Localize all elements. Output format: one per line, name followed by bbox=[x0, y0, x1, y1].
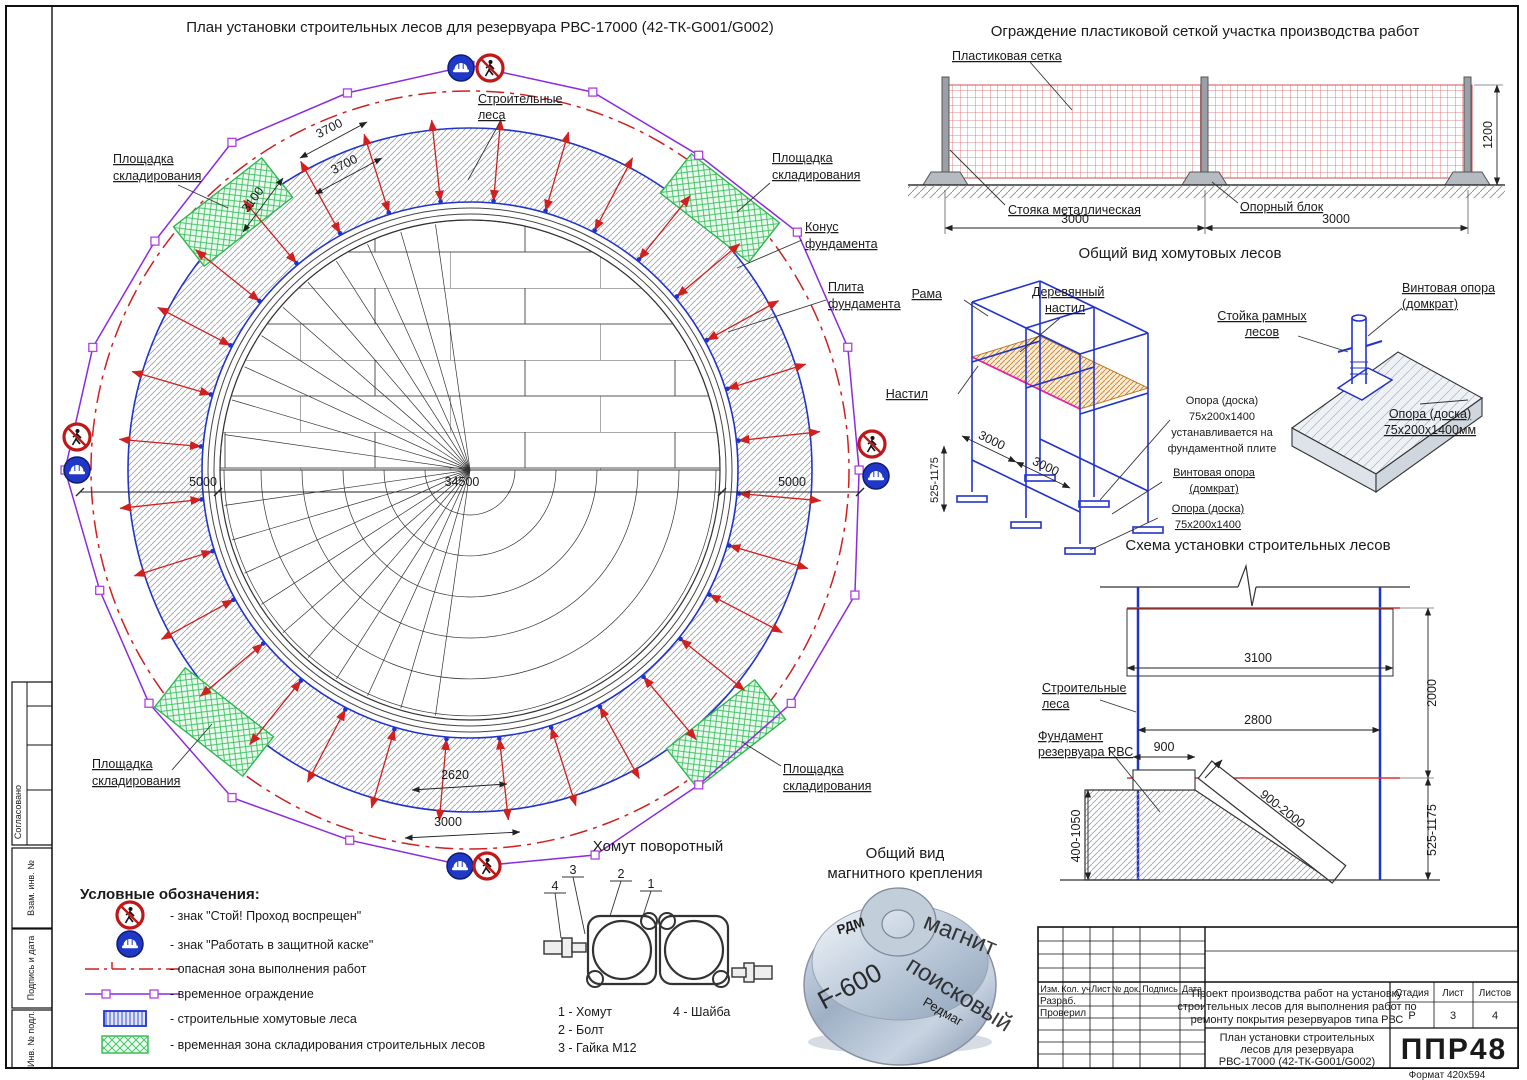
label-scaffold-1: Строительные bbox=[478, 92, 562, 106]
stand-label-1: Стойка рамных bbox=[1217, 309, 1307, 323]
plan-title: План установки строительных лесов для ре… bbox=[186, 19, 773, 36]
dim-900: 900 bbox=[1154, 740, 1175, 754]
part-4: 4 - Шайба bbox=[673, 1005, 730, 1019]
support-block-3 bbox=[1445, 172, 1490, 185]
scaffold-tier bbox=[1127, 609, 1393, 676]
schema-scaffold-label-1: Строительные bbox=[1042, 681, 1126, 695]
dim-1200: 1200 bbox=[1481, 121, 1495, 149]
dim-3000-plan: 3000 bbox=[434, 815, 462, 829]
dim-5000-left: 5000 bbox=[189, 475, 217, 489]
magnet-section: Общий вид магнитного крепления магнит по… bbox=[804, 845, 1017, 1065]
legend-section: Условные обозначения: - знак "Стой! Прох… bbox=[80, 886, 485, 1053]
scaffold-view-title: Общий вид хомутовых лесов bbox=[1079, 245, 1282, 262]
mesh-label: Пластиковая сетка bbox=[952, 49, 1062, 63]
legend-item-6: - временная зона складирования строитель… bbox=[170, 1038, 485, 1052]
label-cone-2: фундамента bbox=[805, 237, 878, 251]
dim-3000-iso1: 3000 bbox=[976, 428, 1007, 453]
col-izm: Изм. bbox=[1040, 984, 1059, 994]
swivel-title: Хомут поворотный bbox=[593, 838, 723, 855]
label-plate-2: фундамента bbox=[828, 297, 901, 311]
row-razrab: Разраб. bbox=[1040, 995, 1076, 1007]
logo-ppr48: ППР48 bbox=[1401, 1033, 1508, 1066]
listov-header: Листов bbox=[1479, 988, 1512, 999]
plan-section: План установки строительных лесов для ре… bbox=[61, 19, 901, 879]
note-1: Опора (доска) bbox=[1186, 395, 1258, 407]
board-label-2: 75х200х1400 bbox=[1175, 519, 1241, 531]
legend-item-3: - опасная зона выполнения работ bbox=[170, 962, 367, 976]
stand-label-2: лесов bbox=[1245, 325, 1280, 339]
part-2: 2 - Болт bbox=[558, 1023, 604, 1037]
label-cone-1: Конус bbox=[805, 220, 839, 234]
dim-3100-schema: 3100 bbox=[1244, 651, 1272, 665]
part-1: 1 - Хомут bbox=[558, 1005, 612, 1019]
screw-label-2: (домкрат) bbox=[1189, 483, 1238, 495]
schema-foundation-label-1: Фундамент bbox=[1038, 729, 1103, 743]
legend-storage-swatch bbox=[102, 1036, 148, 1053]
schema-section: Схема установки строительных лесов 3100 … bbox=[1038, 537, 1440, 883]
clamp-drawing bbox=[544, 913, 772, 987]
project-line-1: Проект производства работ на установку bbox=[1192, 988, 1403, 1000]
schema-foundation-label-2: резервуара РВС bbox=[1038, 745, 1133, 759]
screw-label-1: Винтовая опора bbox=[1173, 467, 1256, 479]
label-storage-sw-2: складирования bbox=[92, 774, 180, 788]
side-label-signdate: Подпись и дата bbox=[26, 936, 36, 1001]
legend-item-2: - знак "Работать в защитной каске" bbox=[170, 938, 373, 952]
dim-5000-right: 5000 bbox=[778, 475, 806, 489]
note-4: фундаментной плите bbox=[1168, 443, 1277, 455]
foundation-step bbox=[1133, 770, 1195, 790]
project-line-3: ремонту покрытия резервуаров типа РВС bbox=[1191, 1014, 1404, 1026]
board-label-1: Опора (доска) bbox=[1172, 503, 1244, 515]
legend-item-4: - временное ограждение bbox=[170, 987, 314, 1001]
fence-post-2 bbox=[1201, 77, 1208, 185]
row-proveril: Проверил bbox=[1040, 1008, 1086, 1019]
scaffold-view-section: Общий вид хомутовых лесов 3000 3000 525-… bbox=[886, 245, 1495, 554]
label-storage-se-2: складирования bbox=[783, 779, 871, 793]
fence-title: Ограждение пластиковой сеткой участка пр… bbox=[991, 23, 1420, 40]
side-label-vzam: Взам. инв. № bbox=[26, 860, 36, 916]
wooden-deck bbox=[972, 336, 1148, 409]
dim-525-schema: 525-1175 bbox=[1425, 804, 1439, 856]
col-list: Лист bbox=[1091, 984, 1111, 994]
col-kol: Кол. уч bbox=[1061, 984, 1091, 994]
part-3: 3 - Гайка М12 bbox=[558, 1041, 637, 1055]
legend-item-5: - строительные хомутовые леса bbox=[170, 1012, 357, 1026]
magnet-title-1: Общий вид bbox=[866, 845, 945, 862]
wood-label-2: настил bbox=[1045, 301, 1085, 315]
note-2: 75х200х1400 bbox=[1189, 411, 1255, 423]
side-label-inv: Инв. № подл. bbox=[26, 1011, 36, 1067]
swivel-clamp-section: Хомут поворотный 4 3 2 1 1 - Хомут 2 - Б… bbox=[544, 838, 772, 1055]
title-block: Изм. Кол. уч Лист № док. Подпись Дата Ра… bbox=[1038, 927, 1518, 1068]
callout-1: 1 bbox=[648, 877, 655, 891]
deck-label: Настил bbox=[886, 387, 928, 401]
format-note: Формат 420х594 bbox=[1409, 1070, 1486, 1080]
legend-scaffold-swatch bbox=[104, 1011, 146, 1026]
listov-value: 4 bbox=[1492, 1010, 1498, 1022]
label-scaffold-2: леса bbox=[478, 108, 505, 122]
drawing-sheet: Согласовано Взам. инв. № Подпись и дата … bbox=[0, 0, 1527, 1080]
list-header: Лист bbox=[1442, 988, 1464, 999]
list-value: 3 bbox=[1450, 1010, 1456, 1022]
fence-section: Ограждение пластиковой сеткой участка пр… bbox=[908, 23, 1505, 234]
fence-post-1 bbox=[942, 77, 949, 185]
block-label: Опорный блок bbox=[1240, 200, 1324, 214]
legend-item-1: - знак "Стой! Проход воспрещен" bbox=[170, 909, 361, 923]
wood-label-1: Деревянный bbox=[1032, 285, 1104, 299]
dim-3000-f1: 3000 bbox=[1061, 212, 1089, 226]
callout-2: 2 bbox=[618, 867, 625, 881]
ground-hatch bbox=[908, 185, 1505, 198]
note-3: устанавливается на bbox=[1171, 427, 1273, 439]
sheet-title-3: РВС-17000 (42-ТК-G001/G002) bbox=[1219, 1056, 1375, 1068]
drawing-canvas: Согласовано Взам. инв. № Подпись и дата … bbox=[0, 0, 1527, 1080]
support-block-2 bbox=[1182, 172, 1227, 185]
label-storage-se-1: Площадка bbox=[783, 762, 844, 776]
stage-value: Р bbox=[1408, 1010, 1415, 1022]
board2-label-1: Опора (доска) bbox=[1389, 407, 1471, 421]
dim-400: 400-1050 bbox=[1069, 810, 1083, 863]
col-doc: № док. bbox=[1112, 984, 1141, 994]
screw-jack-detail: Винтовая опора (домкрат) Стойка рамных л… bbox=[1217, 281, 1495, 492]
sheet-title-2: лесов для резервуара bbox=[1240, 1044, 1354, 1056]
screw2-label-1: Винтовая опора bbox=[1402, 281, 1495, 295]
scaffold-frames bbox=[957, 281, 1163, 554]
rama-label: Рама bbox=[912, 287, 942, 301]
dim-3000-f2: 3000 bbox=[1322, 212, 1350, 226]
label-storage-ne-2: складирования bbox=[772, 168, 860, 182]
label-plate-1: Плита bbox=[828, 280, 864, 294]
magnet-title-2: магнитного крепления bbox=[827, 865, 982, 882]
screw2-label-2: (домкрат) bbox=[1402, 297, 1458, 311]
dim-2620: 2620 bbox=[441, 768, 469, 782]
schema-scaffold-label-2: леса bbox=[1042, 697, 1069, 711]
dim-2800: 2800 bbox=[1244, 713, 1272, 727]
sheet-title-1: План установки строительных bbox=[1220, 1032, 1375, 1044]
legend-title: Условные обозначения: bbox=[80, 886, 260, 903]
dim-34500: 34500 bbox=[445, 475, 480, 489]
side-label-agreed: Согласовано bbox=[13, 785, 23, 839]
callout-3: 3 bbox=[570, 863, 577, 877]
label-storage-ne-1: Площадка bbox=[772, 151, 833, 165]
dim-3700-a: 3700 bbox=[314, 116, 345, 141]
label-storage-nw-2: складирования bbox=[113, 169, 201, 183]
project-line-2: строительных лесов для выполнения работ … bbox=[1177, 1001, 1416, 1013]
support-block-1 bbox=[923, 172, 968, 185]
break-symbol bbox=[1238, 566, 1256, 606]
label-storage-nw-1: Площадка bbox=[113, 152, 174, 166]
schema-title: Схема установки строительных лесов bbox=[1125, 537, 1390, 554]
dim-525-iso: 525-1175 bbox=[929, 457, 941, 503]
board2-label-2: 75х200х1400мм bbox=[1384, 423, 1476, 437]
callout-4: 4 bbox=[552, 879, 559, 893]
col-sign: Подпись bbox=[1142, 984, 1178, 994]
label-storage-sw-1: Площадка bbox=[92, 757, 153, 771]
dim-2000: 2000 bbox=[1425, 679, 1439, 707]
stage-header: Стадия bbox=[1395, 988, 1429, 999]
fence-post-3 bbox=[1464, 77, 1471, 185]
